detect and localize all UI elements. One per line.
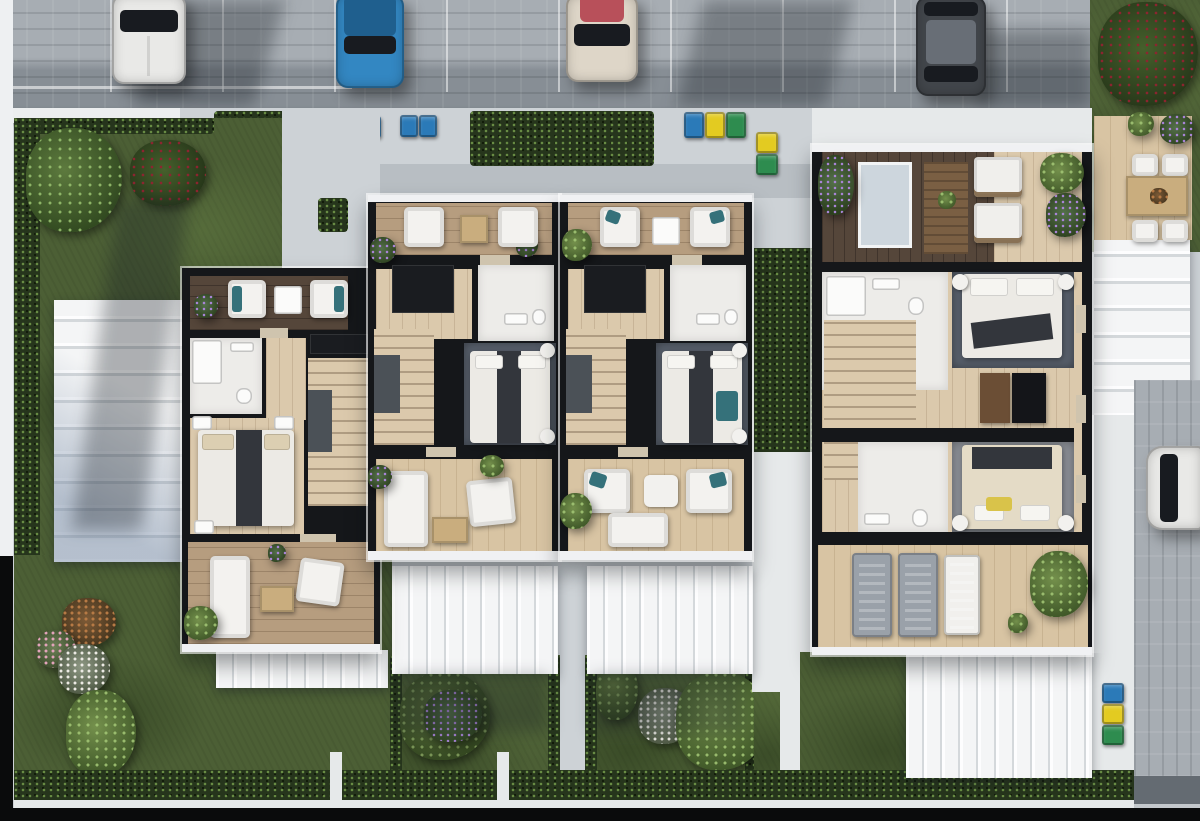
terrace-door <box>672 255 702 265</box>
unit2-rear-pergola <box>392 566 558 674</box>
terrace-pouf <box>644 475 678 507</box>
frame-bottom <box>0 808 1200 821</box>
dining-chair <box>1132 154 1158 176</box>
terrace-armchair <box>310 280 348 318</box>
garden-gap-walk <box>497 752 509 804</box>
bed-pillow <box>710 355 738 369</box>
rear-glass <box>924 2 978 16</box>
stair-landing <box>566 355 592 413</box>
bedroom-pouf <box>1058 274 1074 290</box>
unit3-rim-bottom <box>560 551 752 560</box>
stair-landing <box>308 390 332 452</box>
bed-runner <box>236 430 262 526</box>
desk-wood <box>980 373 1010 423</box>
recycling-bin-blue <box>400 115 418 137</box>
sink <box>872 278 900 290</box>
unit4-bed-south <box>962 445 1062 529</box>
teal-cushion <box>232 286 242 312</box>
frame-left-bottom <box>0 556 13 821</box>
bedroom-terrace-door <box>300 534 336 542</box>
small-hedge-box <box>318 198 348 232</box>
bedroom-pouf <box>732 429 747 444</box>
windshield <box>120 10 178 32</box>
terrace-armchair <box>498 207 538 247</box>
terrace-door <box>480 255 510 265</box>
unit1-rear-awning <box>216 650 388 688</box>
windshield <box>1160 454 1178 522</box>
terrace-armchair <box>466 477 517 528</box>
unit2-bed <box>470 351 550 443</box>
sink <box>696 313 720 325</box>
toilet <box>908 297 924 315</box>
road-shadow <box>677 0 853 106</box>
unit4-rear-pergola <box>906 648 1092 778</box>
front-hedge-right <box>470 111 654 166</box>
teal-cushion <box>604 209 621 225</box>
stair-landing <box>374 355 400 413</box>
cream-car <box>566 0 638 82</box>
toilet <box>236 388 252 404</box>
terrace-armchair <box>686 469 732 513</box>
unit3-rim-top <box>560 195 752 202</box>
scene-floorplan-render <box>0 0 1200 821</box>
left-approach-paving <box>282 110 380 270</box>
terrace-side-table <box>652 217 680 245</box>
sink <box>504 313 528 325</box>
terrace-armchair <box>600 207 640 247</box>
bed-pillow <box>1016 278 1054 296</box>
rear-terrace-door <box>426 447 456 457</box>
bed-pillow <box>475 355 503 369</box>
unit1-bed <box>198 430 294 526</box>
terrace-plant <box>562 229 592 261</box>
terrace-armchair <box>295 557 345 607</box>
bathtub <box>192 340 222 384</box>
terrace-rim <box>182 644 380 652</box>
teal-cushion <box>588 471 608 489</box>
bed-pillow <box>264 434 290 450</box>
desk-black <box>1012 373 1046 423</box>
terrace-armchair <box>228 280 266 318</box>
unit2-wardrobe <box>392 265 454 313</box>
garden-gap-walk <box>330 752 342 804</box>
recycling-bin-blue <box>684 112 704 138</box>
glass-door <box>858 162 912 248</box>
unit3-bathroom <box>670 265 746 341</box>
unit-1 <box>182 268 380 652</box>
road-shadow <box>980 30 1092 108</box>
roof-armchair <box>974 203 1022 243</box>
side-door <box>1076 305 1086 333</box>
terrace-armchair <box>690 207 730 247</box>
terrace-plant <box>370 237 396 263</box>
side-door <box>1076 395 1086 423</box>
nightstand <box>192 416 212 430</box>
unit3-wardrobe <box>584 265 646 313</box>
unit4-mid-wall <box>812 428 1074 442</box>
shower <box>826 276 866 316</box>
recycling-bin-yellow <box>756 132 778 153</box>
nightstand <box>274 416 294 430</box>
windshield <box>924 66 978 82</box>
car-roof <box>926 20 976 64</box>
unit2-bathroom <box>478 265 554 341</box>
unit4-bed-north <box>962 274 1062 358</box>
recycling-bin-green <box>726 112 746 138</box>
building-shadow <box>398 676 548 732</box>
bed-runner <box>971 313 1054 349</box>
terrace-sofa <box>384 471 428 547</box>
right-walkway <box>1092 415 1136 653</box>
bed-pillow <box>970 278 1008 296</box>
roof-armchair <box>974 157 1022 197</box>
terrace-side-table <box>460 215 488 243</box>
bed-runner <box>972 447 1052 469</box>
windshield <box>574 24 630 46</box>
unit2-rim-bottom <box>368 551 560 560</box>
white-car <box>112 0 186 84</box>
dining-chair <box>1132 220 1158 242</box>
unit1-wardrobe <box>310 334 368 354</box>
recycling-bin-yellow <box>1102 704 1124 724</box>
sun-lounger-grey <box>852 553 892 637</box>
unit1-hallway <box>266 338 306 420</box>
recycling-bin-green <box>756 154 778 175</box>
side-door <box>1076 475 1086 503</box>
toilet <box>532 309 546 325</box>
teal-blanket <box>716 391 738 421</box>
left-garden-hedge-top <box>16 118 214 134</box>
left-edge-strip <box>0 0 13 560</box>
bed-pillow <box>667 355 695 369</box>
dining-chair <box>1162 220 1188 242</box>
front-walk-right <box>812 108 1092 148</box>
bed-pillow <box>518 355 546 369</box>
white-car-side <box>1146 446 1200 530</box>
terrace-lounger <box>608 513 668 547</box>
dining-chair <box>1162 154 1188 176</box>
unit3-bed <box>662 351 742 443</box>
car-hood-line <box>147 36 150 76</box>
bedroom-pouf <box>1058 515 1074 531</box>
coffee-table <box>260 586 294 612</box>
bedroom-pouf <box>540 429 555 444</box>
unit-3 <box>560 195 752 560</box>
terrace-armchair <box>404 207 444 247</box>
yellow-pillow <box>986 497 1012 511</box>
rear-terrace-door <box>618 447 648 457</box>
terrace-door <box>260 328 288 338</box>
bed-pillow <box>202 434 234 450</box>
car-roof <box>344 0 396 36</box>
toilet <box>912 509 928 527</box>
nightstand <box>194 520 214 534</box>
car-roof <box>580 0 624 22</box>
dark-grey-car <box>916 0 986 96</box>
right-street-dark-band <box>1134 776 1200 806</box>
unit-4 <box>812 145 1092 655</box>
recycling-bin-blue <box>1102 683 1124 703</box>
recycling-bin-green <box>1102 725 1124 745</box>
unit2-rim-top <box>368 195 560 202</box>
shaded-grass-strip <box>754 248 814 454</box>
recycling-bin-blue <box>419 115 437 137</box>
recycling-bin-yellow <box>705 112 725 138</box>
building-shadow <box>592 676 742 732</box>
terrace-side-table <box>274 286 302 314</box>
unit4-rim-bottom <box>812 647 1092 655</box>
sink <box>230 342 254 352</box>
windshield <box>344 36 396 54</box>
sun-lounger-white <box>944 555 980 635</box>
teal-cushion <box>334 286 344 312</box>
bed-pillow <box>1020 505 1050 521</box>
unit4-rim-top <box>812 145 1092 152</box>
teal-cushion <box>709 209 726 224</box>
sun-lounger-grey <box>898 553 938 637</box>
blue-car <box>336 0 404 88</box>
bedroom-pouf <box>540 343 555 358</box>
bedroom-pouf <box>952 515 968 531</box>
bedroom-pouf <box>732 343 747 358</box>
bedroom-pouf <box>952 274 968 290</box>
unit3-rear-pergola <box>587 566 753 674</box>
teal-cushion <box>709 471 728 488</box>
toilet <box>724 309 738 325</box>
unit-2 <box>368 195 560 560</box>
coffee-table <box>432 517 468 543</box>
sink <box>864 513 890 525</box>
